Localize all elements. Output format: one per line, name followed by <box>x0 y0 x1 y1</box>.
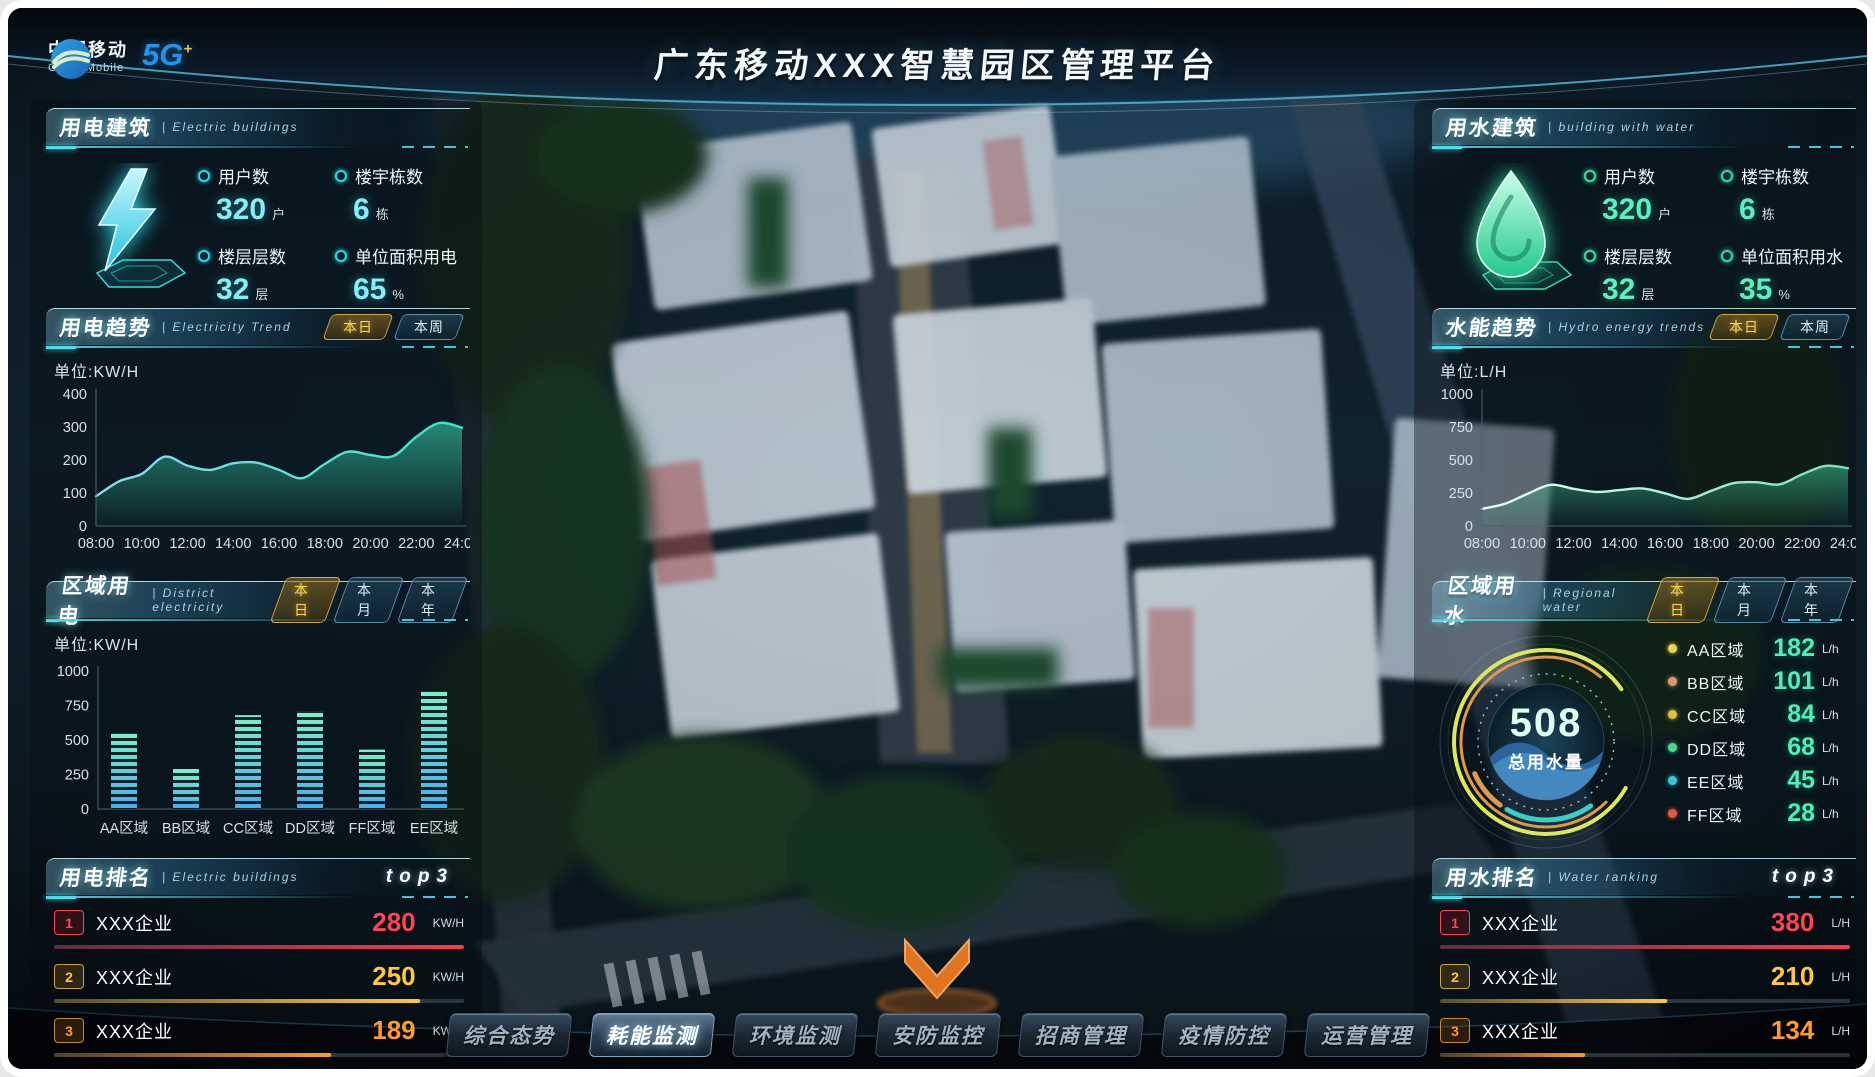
panel-subtitle: | building with water <box>1548 120 1695 134</box>
rank-value: 280 <box>372 907 415 938</box>
period-tabs: 本日 本月 本年 <box>1654 577 1846 623</box>
svg-text:500: 500 <box>1449 453 1473 469</box>
header-dashes <box>402 146 468 148</box>
panel-electricity-trend: 用电趋势 | Electricity Trend 本日 本周 单位:KW/H 0… <box>46 308 470 567</box>
rank-value: 380 <box>1771 907 1814 938</box>
stat-label: 楼宇栋数 <box>355 163 423 188</box>
panel-header: 用电建筑 | Electric buildings <box>46 108 470 145</box>
svg-text:CC区域: CC区域 <box>223 820 273 837</box>
svg-text:10:00: 10:00 <box>1510 536 1546 552</box>
nav-energy-monitoring[interactable]: 耗能监测 <box>588 1013 715 1057</box>
svg-text:16:00: 16:00 <box>1647 536 1683 552</box>
water-legend: AA区域182L/h BB区域101L/h CC区域84L/h DD区域68L/… <box>1660 626 1856 861</box>
stat-users: 用户数 320户 <box>198 163 331 227</box>
rank-name: XXX企业 <box>1482 910 1559 936</box>
rank-badge: 1 <box>54 910 84 935</box>
svg-text:24:00: 24:00 <box>444 536 470 552</box>
svg-text:100: 100 <box>63 486 87 502</box>
panel-subtitle: | Electricity Trend <box>162 320 292 334</box>
header-dashes <box>1788 619 1854 621</box>
bullet-icon <box>1584 170 1596 182</box>
header-dashes <box>402 346 468 348</box>
panel-title: 区域用水 <box>1442 570 1537 630</box>
stat-label: 楼层层数 <box>218 243 286 268</box>
legend-dot-icon <box>1668 809 1677 818</box>
panel-title: 用水建筑 <box>1444 112 1540 142</box>
rank-bar <box>54 945 464 949</box>
top3-label: top3 <box>1772 866 1840 888</box>
rank-bar <box>1440 945 1850 949</box>
stat-value: 6 <box>1739 193 1756 227</box>
legend-dot-icon <box>1668 743 1677 752</box>
tab-this-week[interactable]: 本周 <box>393 314 464 340</box>
rank-name: XXX企业 <box>96 964 173 990</box>
header-dashes <box>1788 896 1854 898</box>
unit-label: 单位:KW/H <box>54 358 470 382</box>
panel-title: 用水排名 <box>1444 862 1540 892</box>
stat-unit: 栋 <box>1762 204 1775 223</box>
rank-badge: 2 <box>54 964 84 989</box>
nav-operation-management[interactable]: 运营管理 <box>1303 1013 1430 1057</box>
panel-subtitle: | Hydro energy trends <box>1548 320 1705 334</box>
china-mobile-logo-icon <box>48 36 94 82</box>
svg-text:08:00: 08:00 <box>1464 536 1500 552</box>
panel-header: 用水排名 | Water ranking top3 <box>1432 858 1856 895</box>
legend-row: CC区域84L/h <box>1668 698 1854 731</box>
stat-floors: 楼层层数 32层 <box>198 243 331 307</box>
rank-name: XXX企业 <box>96 910 173 936</box>
nav-investment-management[interactable]: 招商管理 <box>1017 1013 1144 1057</box>
china-mobile-logo: 中国移动 China Mobile 5G+ <box>48 36 192 74</box>
svg-text:22:00: 22:00 <box>398 536 434 552</box>
rank-row-1: 1XXX企业380L/H <box>1440 907 1850 949</box>
svg-text:08:00: 08:00 <box>78 536 114 552</box>
svg-text:500: 500 <box>65 733 89 749</box>
panel-subtitle: | Electric buildings <box>162 120 299 134</box>
panel-subtitle: | Regional water <box>1543 586 1655 614</box>
legend-dot-icon <box>1668 644 1677 653</box>
stat-value: 32 <box>216 273 249 307</box>
panel-title: 区域用电 <box>56 570 147 630</box>
svg-text:250: 250 <box>1449 486 1473 502</box>
svg-text:1000: 1000 <box>57 664 89 680</box>
svg-text:750: 750 <box>65 699 89 715</box>
panel-title: 用电建筑 <box>58 112 154 142</box>
bullet-icon <box>198 250 210 262</box>
legend-row: AA区域182L/h <box>1668 632 1854 665</box>
nav-epidemic-prevention[interactable]: 疫情防控 <box>1160 1013 1287 1057</box>
rank-row-2: 2XXX企业250KW/H <box>54 961 464 1003</box>
svg-text:AA区域: AA区域 <box>100 820 148 837</box>
svg-text:12:00: 12:00 <box>1555 536 1591 552</box>
panel-header: 区域用水 | Regional water 本日 本月 本年 <box>1432 581 1856 618</box>
rank-row-1: 1XXX企业280KW/H <box>54 907 464 949</box>
rank-unit: KW/H <box>433 970 464 984</box>
panel-subtitle: | District electricity <box>152 586 278 614</box>
rank-bar <box>54 999 464 1003</box>
nav-security-monitoring[interactable]: 安防监控 <box>874 1013 1001 1057</box>
panel-header: 用电趋势 | Electricity Trend 本日 本周 <box>46 308 470 345</box>
panel-title: 水能趋势 <box>1444 312 1540 342</box>
svg-text:0: 0 <box>1465 519 1473 535</box>
stat-buildings: 楼宇栋数 6栋 <box>1721 163 1854 227</box>
tab-today[interactable]: 本日 <box>269 577 341 623</box>
tab-today[interactable]: 本日 <box>322 314 393 340</box>
svg-text:24:00: 24:00 <box>1830 536 1856 552</box>
svg-text:12:00: 12:00 <box>169 536 205 552</box>
panel-regional-water: 区域用水 | Regional water 本日 本月 本年 508总用水量 A… <box>1432 581 1856 861</box>
stat-value: 65 <box>353 273 386 307</box>
bullet-icon <box>198 170 210 182</box>
stat-value: 35 <box>1739 273 1772 307</box>
tab-today[interactable]: 本日 <box>1708 314 1779 340</box>
legend-dot-icon <box>1668 677 1677 686</box>
lightning-icon <box>48 159 198 307</box>
rank-badge: 2 <box>1440 964 1470 989</box>
legend-row: FF区域28L/h <box>1668 797 1854 830</box>
legend-dot-icon <box>1668 776 1677 785</box>
stat-value: 320 <box>1602 193 1652 227</box>
svg-text:DD区域: DD区域 <box>285 820 335 837</box>
stat-unit: 户 <box>1658 204 1671 223</box>
legend-row: EE区域45L/h <box>1668 764 1854 797</box>
hydro-trend-chart: 0250500750100008:0010:0012:0014:0016:001… <box>1432 384 1856 567</box>
svg-text:20:00: 20:00 <box>352 536 388 552</box>
svg-text:300: 300 <box>63 420 87 436</box>
stat-users: 用户数 320户 <box>1584 163 1717 227</box>
header-dashes <box>1788 346 1854 348</box>
svg-text:EE区域: EE区域 <box>410 820 458 837</box>
tab-this-month[interactable]: 本月 <box>333 577 405 623</box>
bullet-icon <box>1721 250 1733 262</box>
stat-unit: 栋 <box>376 204 389 223</box>
stat-unit: 层 <box>1641 284 1654 303</box>
svg-text:18:00: 18:00 <box>307 536 343 552</box>
panel-title: 用电趋势 <box>58 312 154 342</box>
rank-unit: L/H <box>1831 916 1850 930</box>
legend-row: DD区域68L/h <box>1668 731 1854 764</box>
stat-value: 320 <box>216 193 266 227</box>
stat-unit: 户 <box>272 204 285 223</box>
svg-text:20:00: 20:00 <box>1738 536 1774 552</box>
stat-label: 单位面积用电 <box>355 243 457 268</box>
stat-label: 单位面积用水 <box>1741 243 1843 268</box>
stat-unit: % <box>392 287 404 302</box>
nav-environment-monitoring[interactable]: 环境监测 <box>731 1013 858 1057</box>
period-tabs: 本日 本月 本年 <box>278 577 460 623</box>
dashboard-screen: 中国移动 China Mobile 5G+ 广东移动XXX智慧园区管理平台 用电… <box>8 8 1867 1069</box>
stat-value: 6 <box>353 193 370 227</box>
svg-text:0: 0 <box>81 802 89 818</box>
svg-text:200: 200 <box>63 453 87 469</box>
nav-comprehensive-situation[interactable]: 综合态势 <box>445 1013 572 1057</box>
svg-text:0: 0 <box>79 519 87 535</box>
panel-hydro-trend: 水能趋势 | Hydro energy trends 本日 本周 单位:L/H … <box>1432 308 1856 567</box>
panel-header: 用电排名 | Electric buildings top3 <box>46 858 470 895</box>
tab-this-year[interactable]: 本年 <box>397 577 469 623</box>
header-dashes <box>402 619 468 621</box>
bullet-icon <box>1584 250 1596 262</box>
legend-dot-icon <box>1668 710 1677 719</box>
rank-name: XXX企业 <box>1482 964 1559 990</box>
rank-value: 250 <box>372 961 415 992</box>
stat-label: 楼宇栋数 <box>1741 163 1809 188</box>
rank-row-2: 2XXX企业210L/H <box>1440 961 1850 1003</box>
stat-label: 用户数 <box>218 163 269 188</box>
total-water-gauge: 508总用水量 <box>1432 628 1660 861</box>
tab-this-month[interactable]: 本月 <box>1713 577 1788 623</box>
water-drop-icon <box>1434 159 1584 307</box>
svg-text:14:00: 14:00 <box>1601 536 1637 552</box>
panel-district-electricity: 区域用电 | District electricity 本日 本月 本年 单位:… <box>46 581 470 862</box>
stat-value: 32 <box>1602 273 1635 307</box>
unit-label: 单位:L/H <box>1440 358 1856 382</box>
panel-header: 区域用电 | District electricity 本日 本月 本年 <box>46 581 470 618</box>
stat-per-area: 单位面积用水 35% <box>1721 243 1854 307</box>
bullet-icon <box>1721 170 1733 182</box>
header-dashes <box>1788 146 1854 148</box>
rank-badge: 1 <box>1440 910 1470 935</box>
svg-text:22:00: 22:00 <box>1784 536 1820 552</box>
svg-text:1000: 1000 <box>1441 387 1473 403</box>
panel-water-buildings: 用水建筑 | building with water 用户数 320户 <box>1432 108 1856 307</box>
panel-subtitle: | Water ranking <box>1548 870 1659 884</box>
svg-text:16:00: 16:00 <box>261 536 297 552</box>
svg-text:508: 508 <box>1510 701 1583 745</box>
legend-row: BB区域101L/h <box>1668 665 1854 698</box>
panel-header: 水能趋势 | Hydro energy trends 本日 本周 <box>1432 308 1856 345</box>
rank-unit: L/H <box>1831 970 1850 984</box>
stat-unit: % <box>1778 287 1790 302</box>
unit-label: 单位:KW/H <box>54 631 470 655</box>
district-electricity-chart: 02505007501000AA区域BB区域CC区域DD区域FF区域EE区域 <box>46 657 470 862</box>
stat-label: 楼层层数 <box>1604 243 1672 268</box>
panel-subtitle: | Electric buildings <box>162 870 299 884</box>
period-tabs: 本日 本周 <box>1713 314 1846 340</box>
stat-floors: 楼层层数 32层 <box>1584 243 1717 307</box>
bullet-icon <box>335 250 347 262</box>
svg-text:400: 400 <box>63 387 87 403</box>
rank-value: 210 <box>1771 961 1814 992</box>
rank-unit: KW/H <box>433 916 464 930</box>
rank-bar <box>1440 999 1850 1003</box>
header-dashes <box>402 896 468 898</box>
svg-text:750: 750 <box>1449 420 1473 436</box>
svg-text:10:00: 10:00 <box>124 536 160 552</box>
svg-text:总用水量: 总用水量 <box>1508 752 1584 772</box>
top3-label: top3 <box>386 866 454 888</box>
svg-text:FF区域: FF区域 <box>349 820 396 837</box>
tab-this-week[interactable]: 本周 <box>1779 314 1850 340</box>
panel-header: 用水建筑 | building with water <box>1432 108 1856 145</box>
tab-today[interactable]: 本日 <box>1646 577 1721 623</box>
svg-text:14:00: 14:00 <box>215 536 251 552</box>
stat-buildings: 楼宇栋数 6栋 <box>335 163 468 227</box>
svg-text:18:00: 18:00 <box>1693 536 1729 552</box>
stat-label: 用户数 <box>1604 163 1655 188</box>
svg-text:BB区域: BB区域 <box>162 820 210 837</box>
period-tabs: 本日 本周 <box>327 314 460 340</box>
fiveg-badge: 5G+ <box>142 37 192 73</box>
panel-electric-buildings: 用电建筑 | Electric buildings 用户数 320户 <box>46 108 470 307</box>
panel-title: 用电排名 <box>58 862 154 892</box>
bottom-nav: 综合态势 耗能监测 环境监测 安防监控 招商管理 疫情防控 运营管理 <box>8 1013 1867 1057</box>
tab-this-year[interactable]: 本年 <box>1780 577 1855 623</box>
bullet-icon <box>335 170 347 182</box>
svg-text:250: 250 <box>65 768 89 784</box>
stat-per-area: 单位面积用电 65% <box>335 243 468 307</box>
electricity-trend-chart: 010020030040008:0010:0012:0014:0016:0018… <box>46 384 470 567</box>
stat-unit: 层 <box>255 284 268 303</box>
